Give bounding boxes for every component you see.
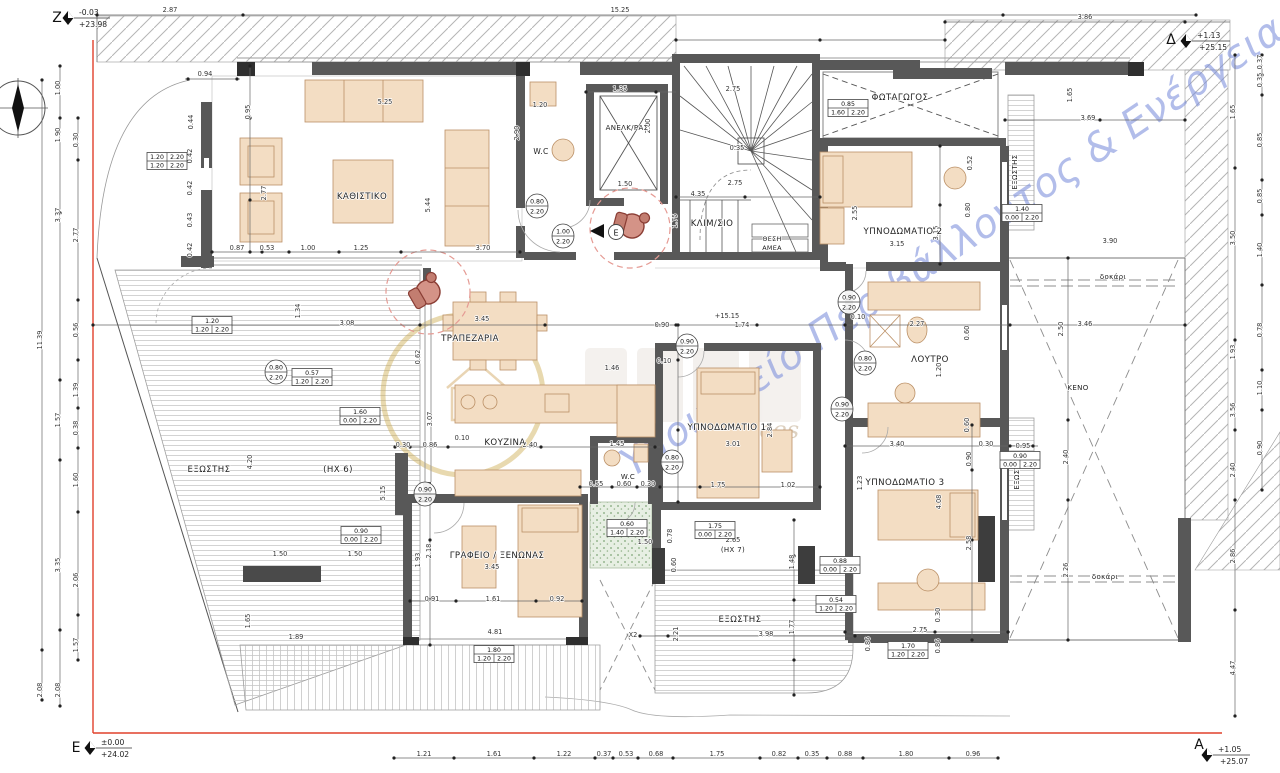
dim-label: 1.61 bbox=[487, 750, 502, 758]
dim-label: 4.08 bbox=[935, 495, 943, 510]
dim-label: 0.10 bbox=[851, 313, 866, 321]
dim-label: 0.86 bbox=[864, 637, 872, 652]
door-size-value: 0.80 bbox=[269, 364, 283, 371]
dim-label: 1.46 bbox=[605, 364, 620, 372]
schedule-box-value: 2.20 bbox=[215, 326, 229, 333]
dim-label: 3.98 bbox=[759, 630, 774, 638]
schedule-box-value: 0.88 bbox=[833, 558, 847, 565]
dim-label: 0.87 bbox=[230, 244, 245, 252]
dim-label: 2.40 bbox=[1229, 463, 1237, 478]
dim-label: 1.75 bbox=[671, 214, 679, 229]
schedule-box-value: 0.00 bbox=[823, 566, 837, 573]
dim-label: 2.58 bbox=[965, 536, 973, 551]
door-size-value: 2.20 bbox=[269, 374, 283, 381]
dim-label: 1.75 bbox=[710, 750, 725, 758]
dim-label: 1.61 bbox=[486, 595, 501, 603]
dim-label: 0.43 bbox=[186, 213, 194, 228]
dim-label: 1.65 bbox=[244, 614, 252, 629]
dim-label: 0.35 bbox=[730, 144, 745, 152]
dim-label: 1.93 bbox=[414, 553, 422, 568]
marker-value: +23.98 bbox=[79, 20, 107, 29]
dim-label: 1.80 bbox=[899, 750, 914, 758]
schedule-box-value: 1.40 bbox=[1015, 206, 1029, 213]
marker-value: ±0.00 bbox=[101, 738, 124, 747]
room-label: W.C bbox=[533, 147, 548, 156]
dim-label: 0.90 bbox=[655, 321, 670, 329]
schedule-box-value: 2.20 bbox=[1023, 461, 1037, 468]
schedule-box-value: 2.20 bbox=[363, 417, 377, 424]
dim-label: 15.25 bbox=[611, 6, 630, 14]
door-size-value: 0.90 bbox=[418, 486, 432, 493]
dim-label: 0.56 bbox=[72, 323, 80, 338]
dim-label: 1.40 bbox=[1256, 243, 1264, 258]
dim-label: 0.53 bbox=[619, 750, 634, 758]
marker-value: +25.07 bbox=[1220, 757, 1248, 766]
dim-label: 5.44 bbox=[424, 198, 432, 213]
dim-label: 0.94 bbox=[198, 70, 213, 78]
marker-letter: E bbox=[72, 740, 81, 756]
schedule-box-value: 1.70 bbox=[901, 643, 915, 650]
dim-label: 1.60 bbox=[72, 473, 80, 488]
dim-label: 3.08 bbox=[340, 319, 355, 327]
schedule-box-value: 2.20 bbox=[315, 378, 329, 385]
schedule-box-value: 0.00 bbox=[343, 417, 357, 424]
dim-label: 0.30 bbox=[979, 440, 994, 448]
dim-label: 0.42 bbox=[186, 243, 194, 258]
dim-label: 1.57 bbox=[72, 638, 80, 653]
dim-label: 3.50 bbox=[1229, 231, 1237, 246]
schedule-box-value: 1.60 bbox=[353, 409, 367, 416]
dim-label: 0.96 bbox=[966, 750, 981, 758]
room-label: ΥΠΝΟΔΩΜΑΤΙΟ 2 bbox=[863, 227, 943, 237]
north-compass-icon bbox=[0, 78, 48, 138]
dim-label: 3.86 bbox=[1078, 13, 1093, 21]
schedule-box-value: 1.20 bbox=[150, 162, 164, 169]
dim-label: 0.37 bbox=[597, 750, 612, 758]
dim-label: 3.90 bbox=[1103, 237, 1118, 245]
dim-label: 1.00 bbox=[54, 81, 62, 96]
dim-label: 1.48 bbox=[788, 555, 796, 570]
schedule-box-value: 1.60 bbox=[831, 109, 845, 116]
dim-label: 4.20 bbox=[246, 455, 254, 470]
room-label: ΑΝΕΛΚ/ΡΑΣ bbox=[606, 124, 649, 132]
dim-label: 0.85 bbox=[1256, 189, 1264, 204]
dim-label: 1.21 bbox=[417, 750, 432, 758]
room-label: ΘΕΣΗ bbox=[762, 235, 781, 243]
dim-label: 0.88 bbox=[838, 750, 853, 758]
room-label: ΕΞΩΣΤΗΣ bbox=[718, 615, 761, 625]
dim-label: 0.30 bbox=[396, 441, 411, 449]
schedule-box-value: 1.20 bbox=[205, 318, 219, 325]
dim-label: 3.01 bbox=[726, 440, 741, 448]
dim-label: 3.40 bbox=[890, 440, 905, 448]
dim-label: 0.78 bbox=[1256, 323, 1264, 338]
door-size-value: 2.20 bbox=[680, 348, 694, 355]
dim-label: 2.18 bbox=[425, 544, 433, 559]
dim-label: 0.85 bbox=[1256, 133, 1264, 148]
door-size-value: 0.80 bbox=[858, 355, 872, 362]
dim-label: 4.81 bbox=[488, 628, 503, 636]
dim-label: 0.37 bbox=[1256, 55, 1264, 70]
dim-label: 2.75 bbox=[726, 85, 741, 93]
dim-label: 3.45 bbox=[485, 563, 500, 571]
dim-label: 2.27 bbox=[910, 320, 925, 328]
dim-label: 1.50 bbox=[348, 550, 363, 558]
dim-label: 1.65 bbox=[1066, 88, 1074, 103]
dim-label: 1.23 bbox=[856, 476, 864, 491]
marker-letter: Δ bbox=[1166, 32, 1176, 48]
dim-label: 1.10 bbox=[1256, 381, 1264, 396]
schedule-box-value: 0.00 bbox=[344, 536, 358, 543]
room-label: ΚΕΝΟ bbox=[1067, 384, 1088, 392]
room-label: ΥΠΝΟΔΩΜΑΤΙΟ 1 bbox=[687, 423, 767, 433]
dim-label: 2.06 bbox=[72, 573, 80, 588]
dim-label: 0.78 bbox=[666, 529, 674, 544]
dim-label: 0.35 bbox=[805, 750, 820, 758]
dim-label: 0.68 bbox=[649, 750, 664, 758]
room-label: ΚΛΙΜ/ΣΙΟ bbox=[691, 219, 734, 229]
dim-label: 2.84 bbox=[766, 423, 774, 438]
schedule-box-value: 2.20 bbox=[851, 109, 865, 116]
dim-label: 3.37 bbox=[54, 208, 62, 223]
dim-label: 0.30 bbox=[641, 480, 656, 488]
marker-value: +1.05 bbox=[1218, 745, 1241, 754]
schedule-box-value: 2.20 bbox=[497, 655, 511, 662]
dim-label: 0.86 bbox=[934, 639, 942, 654]
dim-label: 1.02 bbox=[781, 481, 796, 489]
dim-label: 0.62 bbox=[414, 350, 422, 365]
dim-label: 1.22 bbox=[557, 750, 572, 758]
dim-label: 0.10 bbox=[455, 434, 470, 442]
dim-label: 0.80 bbox=[964, 203, 972, 218]
schedule-box-value: 1.20 bbox=[477, 655, 491, 662]
door-size-value: 0.90 bbox=[680, 338, 694, 345]
door-size-value: 2.20 bbox=[530, 208, 544, 215]
schedule-box-value: 1.20 bbox=[819, 605, 833, 612]
dim-label: 1.90 bbox=[54, 128, 62, 143]
dim-label: 2.77 bbox=[260, 186, 268, 201]
dim-label: 11.39 bbox=[36, 331, 44, 350]
dim-label: 5.25 bbox=[378, 98, 393, 106]
room-label: ΚΑΘΙΣΤΙΚΟ bbox=[337, 192, 387, 202]
dim-label: 2.75 bbox=[728, 179, 743, 187]
entry-arrow-icon bbox=[590, 224, 604, 238]
dim-label: 0.55 bbox=[589, 480, 604, 488]
marker-value: +24.02 bbox=[101, 750, 129, 759]
dim-label: 1.57 bbox=[54, 413, 62, 428]
dim-label: 2.75 bbox=[913, 626, 928, 634]
marker-value: +1.13 bbox=[1197, 31, 1220, 40]
room-label: (ΗΧ 7) bbox=[721, 546, 745, 554]
schedule-box-value: 0.00 bbox=[1005, 214, 1019, 221]
schedule-box-value: 0.00 bbox=[1003, 461, 1017, 468]
schedule-box-value: 1.20 bbox=[150, 154, 164, 161]
dim-label: 2.86 bbox=[1229, 549, 1237, 564]
dim-label: 0.60 bbox=[963, 326, 971, 341]
dim-label: 1.25 bbox=[354, 244, 369, 252]
dim-label: 3.46 bbox=[1078, 320, 1093, 328]
door-size-value: 2.20 bbox=[835, 411, 849, 418]
dim-label: 1.50 bbox=[638, 538, 653, 546]
room-label: ΛΟΥΤΡΟ bbox=[911, 355, 949, 365]
marker-letter: Z bbox=[52, 10, 62, 26]
door-size-value: 2.20 bbox=[842, 304, 856, 311]
dim-label: 3.56 bbox=[1229, 403, 1237, 418]
dim-label: 2.55 bbox=[851, 206, 859, 221]
schedule-box-value: 0.57 bbox=[305, 370, 319, 377]
dim-label: 3.69 bbox=[1081, 114, 1096, 122]
schedule-box-value: 0.85 bbox=[841, 101, 855, 108]
schedule-box-value: 1.20 bbox=[891, 651, 905, 658]
dim-label: 1.77 bbox=[788, 620, 796, 635]
schedule-box-value: 2.20 bbox=[170, 162, 184, 169]
schedule-box-value: 2.20 bbox=[718, 531, 732, 538]
dim-label: 1.34 bbox=[294, 304, 302, 319]
dim-label: X2 bbox=[629, 631, 638, 639]
dim-label: 1.74 bbox=[735, 321, 750, 329]
dim-label: 3.15 bbox=[890, 240, 905, 248]
dim-label: 2.21 bbox=[672, 627, 680, 642]
dim-label: 3.07 bbox=[426, 412, 434, 427]
room-label: ΑΜΕΑ bbox=[762, 244, 782, 252]
dim-label: 0.86 bbox=[423, 441, 438, 449]
dim-label: 2.40 bbox=[1062, 450, 1070, 465]
level-marker-e: E ±0.00 +24.02 bbox=[72, 738, 132, 759]
dim-label: 1.20 bbox=[533, 101, 548, 109]
door-size-value: 0.80 bbox=[530, 198, 544, 205]
dim-label: 2.50 bbox=[1057, 322, 1065, 337]
dim-label: 0.60 bbox=[617, 480, 632, 488]
elevator bbox=[600, 96, 657, 190]
dim-label: 0.95 bbox=[1016, 442, 1031, 450]
door-size-value: 2.20 bbox=[556, 238, 570, 245]
schedule-box-value: 2.20 bbox=[839, 605, 853, 612]
dim-label: 1.39 bbox=[72, 383, 80, 398]
floor-plan-canvas: services Υπουργείο Περιβάλλοντος & Ενέργ… bbox=[0, 0, 1280, 773]
room-label: δοκάρι bbox=[1092, 573, 1118, 581]
entry-arrow-label: E bbox=[613, 229, 618, 238]
door-size-value: 0.90 bbox=[835, 401, 849, 408]
dim-label: +15.15 bbox=[715, 312, 739, 320]
dim-label: 3.45 bbox=[475, 315, 490, 323]
dim-label: 0.60 bbox=[670, 558, 678, 573]
dim-label: 2.87 bbox=[163, 6, 178, 14]
room-label: ΦΩΤΑΓΩΓΟΣ bbox=[872, 93, 929, 103]
dim-label: 0.90 bbox=[1256, 441, 1264, 456]
dim-label: 1.75 bbox=[711, 481, 726, 489]
dim-label: 2.08 bbox=[54, 683, 62, 698]
dim-label: 5.15 bbox=[379, 486, 387, 501]
door-size-value: 2.20 bbox=[665, 464, 679, 471]
dim-label: 0.10 bbox=[657, 357, 672, 365]
schedule-box-value: 2.20 bbox=[911, 651, 925, 658]
dim-label: 3.35 bbox=[54, 558, 62, 573]
schedule-box-value: 1.80 bbox=[487, 647, 501, 654]
dim-label: 0.53 bbox=[260, 244, 275, 252]
schedule-box-value: 0.54 bbox=[829, 597, 843, 604]
dim-label: 1.50 bbox=[618, 180, 633, 188]
door-size-value: 2.20 bbox=[418, 496, 432, 503]
dim-label: 1.50 bbox=[273, 550, 288, 558]
dim-label: 0.60 bbox=[963, 418, 971, 433]
schedule-box-value: 2.20 bbox=[843, 566, 857, 573]
room-label: ΚΟΥΖΙΝΑ bbox=[484, 438, 525, 448]
dim-label: 0.35 bbox=[1256, 73, 1264, 88]
marker-value: +25.15 bbox=[1199, 43, 1227, 52]
schedule-box-value: 0.60 bbox=[620, 521, 634, 528]
schedule-box-value: 1.75 bbox=[708, 523, 722, 530]
dim-label: 2.77 bbox=[72, 228, 80, 243]
dim-label: 1.00 bbox=[301, 244, 316, 252]
schedule-box-value: 1.20 bbox=[295, 378, 309, 385]
door-size-value: 0.80 bbox=[665, 454, 679, 461]
door-size-value: 1.00 bbox=[556, 228, 570, 235]
dim-label: 0.91 bbox=[425, 595, 440, 603]
room-label: δοκάρι bbox=[1100, 273, 1126, 281]
schedule-box-value: 2.20 bbox=[1025, 214, 1039, 221]
level-marker-a: A +1.05 +25.07 bbox=[1194, 737, 1250, 766]
dim-label: 2.08 bbox=[36, 683, 44, 698]
room-label: ΕΞΩΣΤΗΣ bbox=[1011, 154, 1019, 189]
schedule-box-value: 1.40 bbox=[610, 529, 624, 536]
dim-label: 1.93 bbox=[1229, 345, 1237, 360]
dim-label: 0.90 bbox=[965, 452, 973, 467]
dim-label: 0.95 bbox=[244, 105, 252, 120]
room-label: ΤΡΑΠΕΖΑΡΙΑ bbox=[440, 334, 499, 344]
dim-label: 0.30 bbox=[72, 133, 80, 148]
schedule-box-value: 0.00 bbox=[698, 531, 712, 538]
room-label: W.C bbox=[621, 473, 635, 481]
dim-label: 0.38 bbox=[72, 421, 80, 436]
dim-label: 0.92 bbox=[550, 595, 565, 603]
dim-label: 2.26 bbox=[1062, 563, 1070, 578]
dim-label: 1.45 bbox=[610, 440, 625, 448]
dim-label: 0.82 bbox=[772, 750, 787, 758]
room-label: ΕΞΩΣΤΗΣ bbox=[187, 465, 230, 475]
schedule-box-value: 2.20 bbox=[170, 154, 184, 161]
dim-label: 1.89 bbox=[289, 633, 304, 641]
dim-label: 4.35 bbox=[691, 190, 706, 198]
dim-label: 1.35 bbox=[613, 85, 628, 93]
dim-label: 0.44 bbox=[187, 115, 195, 130]
room-label: ΥΠΝΟΔΩΜΑΤΙΟ 3 bbox=[865, 478, 945, 488]
dim-label: 0.42 bbox=[186, 181, 194, 196]
dim-label: 2.90 bbox=[513, 126, 521, 141]
schedule-box-value: 2.20 bbox=[364, 536, 378, 543]
dim-label: 0.30 bbox=[934, 608, 942, 623]
dim-label: 0.52 bbox=[966, 156, 974, 171]
floor-plan-svg: services Υπουργείο Περιβάλλοντος & Ενέργ… bbox=[0, 0, 1280, 773]
room-label: (ΗΧ 6) bbox=[323, 465, 353, 475]
schedule-box-value: 0.90 bbox=[1013, 453, 1027, 460]
door-size-value: 2.20 bbox=[858, 365, 872, 372]
marker-letter: A bbox=[1194, 737, 1204, 753]
schedule-box-value: 1.20 bbox=[195, 326, 209, 333]
dim-label: 4.47 bbox=[1229, 661, 1237, 676]
schedule-box-value: 0.90 bbox=[354, 528, 368, 535]
dim-label: 3.70 bbox=[476, 244, 491, 252]
schedule-box-value: 2.20 bbox=[630, 529, 644, 536]
door-size-value: 0.90 bbox=[842, 294, 856, 301]
dim-label: 1.65 bbox=[1229, 105, 1237, 120]
room-label: ΓΡΑΦΕΙΟ / ΞΕΝΩΝΑΣ bbox=[450, 551, 545, 561]
